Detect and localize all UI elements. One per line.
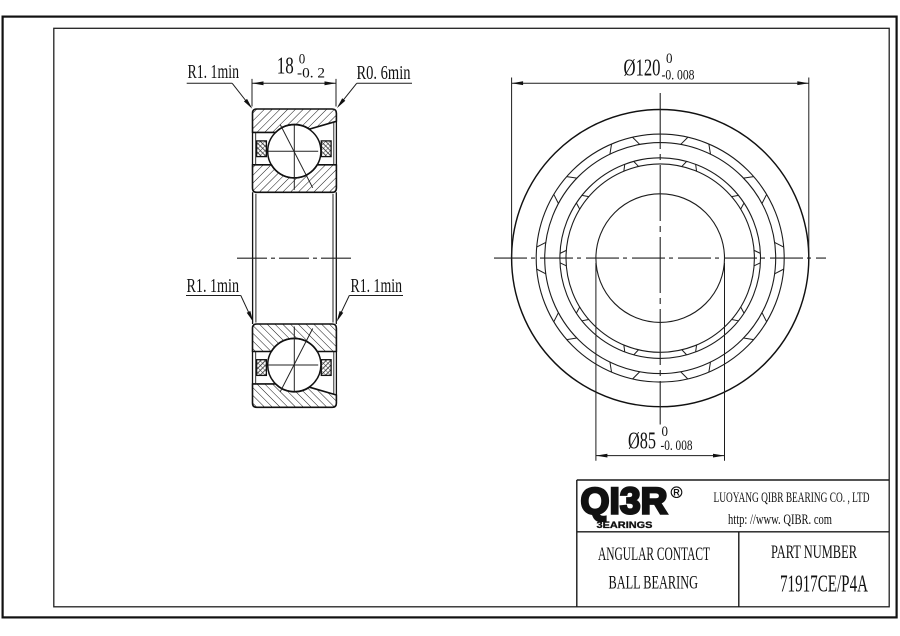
svg-text:LUOYANG QIBR BEARING CO. , LTD: LUOYANG QIBR BEARING CO. , LTD <box>714 490 870 506</box>
svg-text:-0. 2: -0. 2 <box>297 66 325 82</box>
svg-text:R1. 1min: R1. 1min <box>188 61 240 83</box>
svg-text:-0. 008: -0. 008 <box>662 68 695 84</box>
svg-text:R0. 6min: R0. 6min <box>357 62 411 84</box>
svg-text:http: //www. QIBR. com: http: //www. QIBR. com <box>728 512 832 528</box>
svg-text:QI3R: QI3R <box>581 481 668 522</box>
svg-text:3EARINGS: 3EARINGS <box>597 520 653 531</box>
svg-text:BALL BEARING: BALL BEARING <box>609 574 699 594</box>
svg-text:ANGULAR CONTACT: ANGULAR CONTACT <box>598 545 710 565</box>
svg-text:R: R <box>673 487 680 497</box>
svg-text:Ø120: Ø120 <box>624 56 661 82</box>
svg-text:R1. 1min: R1. 1min <box>187 275 240 297</box>
svg-text:18: 18 <box>277 53 294 79</box>
svg-text:-0. 008: -0. 008 <box>661 438 693 454</box>
svg-text:0: 0 <box>666 51 673 67</box>
svg-text:71917CE/P4A: 71917CE/P4A <box>780 572 868 598</box>
svg-text:R1. 1min: R1. 1min <box>351 275 403 297</box>
svg-text:Ø85: Ø85 <box>628 429 656 455</box>
svg-text:PART NUMBER: PART NUMBER <box>771 542 857 563</box>
